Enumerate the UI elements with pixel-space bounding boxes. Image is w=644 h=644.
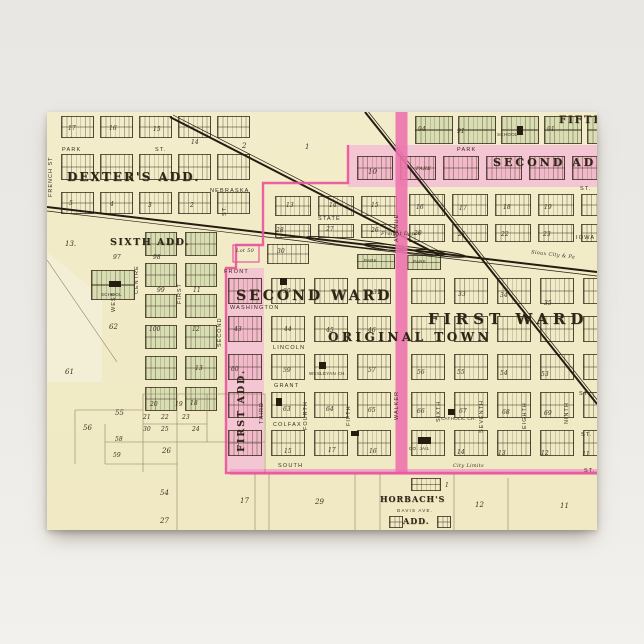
street-label: IOWA [576,235,595,241]
block-number: 13. [65,240,76,248]
block-number: 98 [153,254,161,261]
block-number: 68 [502,409,510,416]
block-number: 100 [149,326,160,333]
block-number: 33 [458,291,466,298]
street-label-vertical: SEVENTH [479,400,485,433]
block-number: 11 [560,502,569,510]
block-number: 26 [162,447,171,455]
block-number: 97 [113,254,121,261]
street-label: COLFAX [273,422,302,428]
addition-or-ward-label: FIFTH ADD. [559,115,597,126]
street-label: LINCOLN [273,345,305,351]
building-icon [351,431,359,436]
block-number: 94 [418,126,426,133]
block-number: 30 [277,248,285,255]
street-label-vertical: SECOND [217,317,223,347]
block-number: 35 [544,300,552,307]
street-label: ST. [580,186,592,192]
street-label-vertical: FOURTH [303,401,309,430]
block-number: 64 [326,406,334,413]
landmark-label: Lot 50 [236,248,254,254]
block-number: 55 [115,409,124,417]
block-number: 17 [328,447,336,454]
street-label-vertical: CENTRE [134,265,140,294]
block-number: 13 [498,450,506,457]
block-number: 21 [143,414,151,421]
building-icon [448,409,455,415]
block-number: 20 [414,230,422,237]
block-number: 10 [368,168,377,176]
street-label-vertical: AVENUE [394,214,400,242]
block-number: 20 [150,401,158,408]
block-number: 66 [417,408,425,415]
block-number: 58 [115,436,123,443]
block-number: 69 [544,410,552,417]
street-label: NEBRASKA [210,188,250,194]
street-label-vertical: FIRST [177,283,183,304]
street-label-vertical: FIFTH [346,405,352,426]
street-label: STATE [318,216,341,222]
block-number: 99 [157,287,165,294]
photo-background: DEXTER'S ADD.SIXTH ADD.SECOND WARDORIGIN… [0,0,644,644]
street-label: ST. [581,432,593,438]
addition-or-ward-label: ADD. [403,516,430,526]
street-label-vertical: FRENCH ST [48,157,54,197]
block-number: 60 [231,366,239,373]
block-number: 39 [283,288,291,295]
block-number: 44 [284,326,292,333]
block-number: 56 [417,369,425,376]
landmark-label: CO. JAIL [409,446,430,451]
block-number: 27 [326,226,334,233]
block-number: 16 [416,204,424,211]
block-number: 67 [459,408,467,415]
street-label-vertical: EIGHTH [522,402,528,429]
block-number: 17 [240,497,249,505]
block-number: 26 [371,227,379,234]
street-label-vertical: ST. [222,205,228,216]
street-label: PARK [62,147,81,153]
block-number: 13 [286,202,294,209]
landmark-label: City Limits [453,463,484,469]
block-number: 27 [160,517,169,525]
block-number: 19 [544,204,552,211]
block-number: 34 [500,292,508,299]
street-label-vertical: NINTH [564,402,570,424]
block-number: 59 [113,452,121,459]
block-number: 15 [153,126,161,133]
landmark-label: CATHOLIC CH. [441,416,476,421]
building-icon [418,437,431,444]
street-label: FRONT [224,269,249,275]
building-icon [276,398,282,406]
street-label-vertical: THIRD [259,402,265,424]
block-number: 57 [368,367,376,374]
landmark-label: PARK [413,259,426,264]
block-number: 12 [541,450,549,457]
block-number: 91 [547,126,555,133]
block-number: 23 [182,414,190,421]
block-number: 65 [368,407,376,414]
landmark-label: SCHOOL [101,292,122,297]
block-number: 5 [69,200,73,207]
block-number: 11 [582,451,590,458]
block-number: 61 [65,368,74,376]
street-label-vertical: WALKER [394,391,400,420]
block-number: 22 [161,414,169,421]
block-number: 29 [315,498,324,506]
block-number: 45 [326,327,334,334]
block-number: 3 [148,202,152,209]
landmark-label: WESLEYAN CH. [309,371,346,376]
block-number: 18 [503,204,511,211]
block-number: 14 [191,139,199,146]
block-number: 2 [242,142,246,150]
building-icon [319,362,326,369]
street-label: GRANT [274,383,299,389]
street-label: DAVIS AVE. [397,508,433,513]
building-icon [109,281,121,287]
block-number: 31 [373,289,381,296]
addition-or-ward-label: SECOND WARD [236,288,392,304]
block-number: 4 [110,201,114,208]
block-number: 19 [175,401,183,408]
block-number: 56 [83,424,92,432]
postcard: DEXTER'S ADD.SIXTH ADD.SECOND WARDORIGIN… [47,112,597,530]
block-number: 14 [457,449,465,456]
block-number: 25 [161,426,169,433]
block-number: 13 [195,365,203,372]
block-number: 18 [190,400,198,407]
block-number: 63 [283,406,291,413]
building-icon [280,278,287,285]
block-number: 12 [475,501,484,509]
street-label: ST. [155,147,167,153]
block-number: 23 [543,231,551,238]
block-number: 22 [501,231,509,238]
block-number: 16 [109,125,117,132]
street-label: ST. [584,468,596,474]
landmark-label: PARK [364,258,377,263]
block-number: 53 [541,371,549,378]
landmark-label: SCHOOL [497,132,518,137]
addition-or-ward-label: HORBACH'S [380,494,445,504]
block-number: 43 [234,326,242,333]
block-number: 62 [109,323,118,331]
block-number: 30 [143,426,151,433]
block-number: 54 [160,489,169,497]
block-number: 59 [283,367,291,374]
street-label: SOUTH [278,463,303,469]
addition-or-ward-label: FIRST WARD [428,310,588,328]
addition-or-ward-label: SIXTH ADD. [110,237,190,248]
addition-or-ward-label: SECOND ADD. [493,156,597,169]
block-number: 24 [192,426,200,433]
block-number: 28 [276,227,284,234]
street-label: WASHINGTON [230,305,280,311]
block-number: 16 [369,448,377,455]
block-number: 11 [193,287,201,294]
block-number: 17 [68,125,76,132]
addition-or-ward-label: DEXTER'S ADD. [67,170,200,184]
street-label: PARK [457,147,476,153]
block-number: 21 [458,231,466,238]
block-number: 55 [457,369,465,376]
block-number: 12 [192,326,200,333]
building-icon [517,126,523,135]
block-number: 91 [457,128,465,135]
landmark-label: PARK [416,166,431,172]
map-labels-layer: DEXTER'S ADD.SIXTH ADD.SECOND WARDORIGIN… [47,112,597,530]
addition-or-ward-label: ORIGINAL TOWN [328,330,492,344]
block-number: 1 [445,482,449,489]
street-label: ST. [579,391,591,397]
block-number: 54 [500,370,508,377]
block-number: 2 [190,202,194,209]
addition-or-ward-label: FIRST ADD. [236,369,247,452]
block-number: 1 [305,143,309,151]
landmark-label: Sioux City & Pa [531,249,576,260]
block-number: 14 [329,202,337,209]
block-number: 46 [368,327,376,334]
block-number: 17 [459,205,467,212]
block-number: 15 [284,448,292,455]
block-number: 15 [371,202,379,209]
